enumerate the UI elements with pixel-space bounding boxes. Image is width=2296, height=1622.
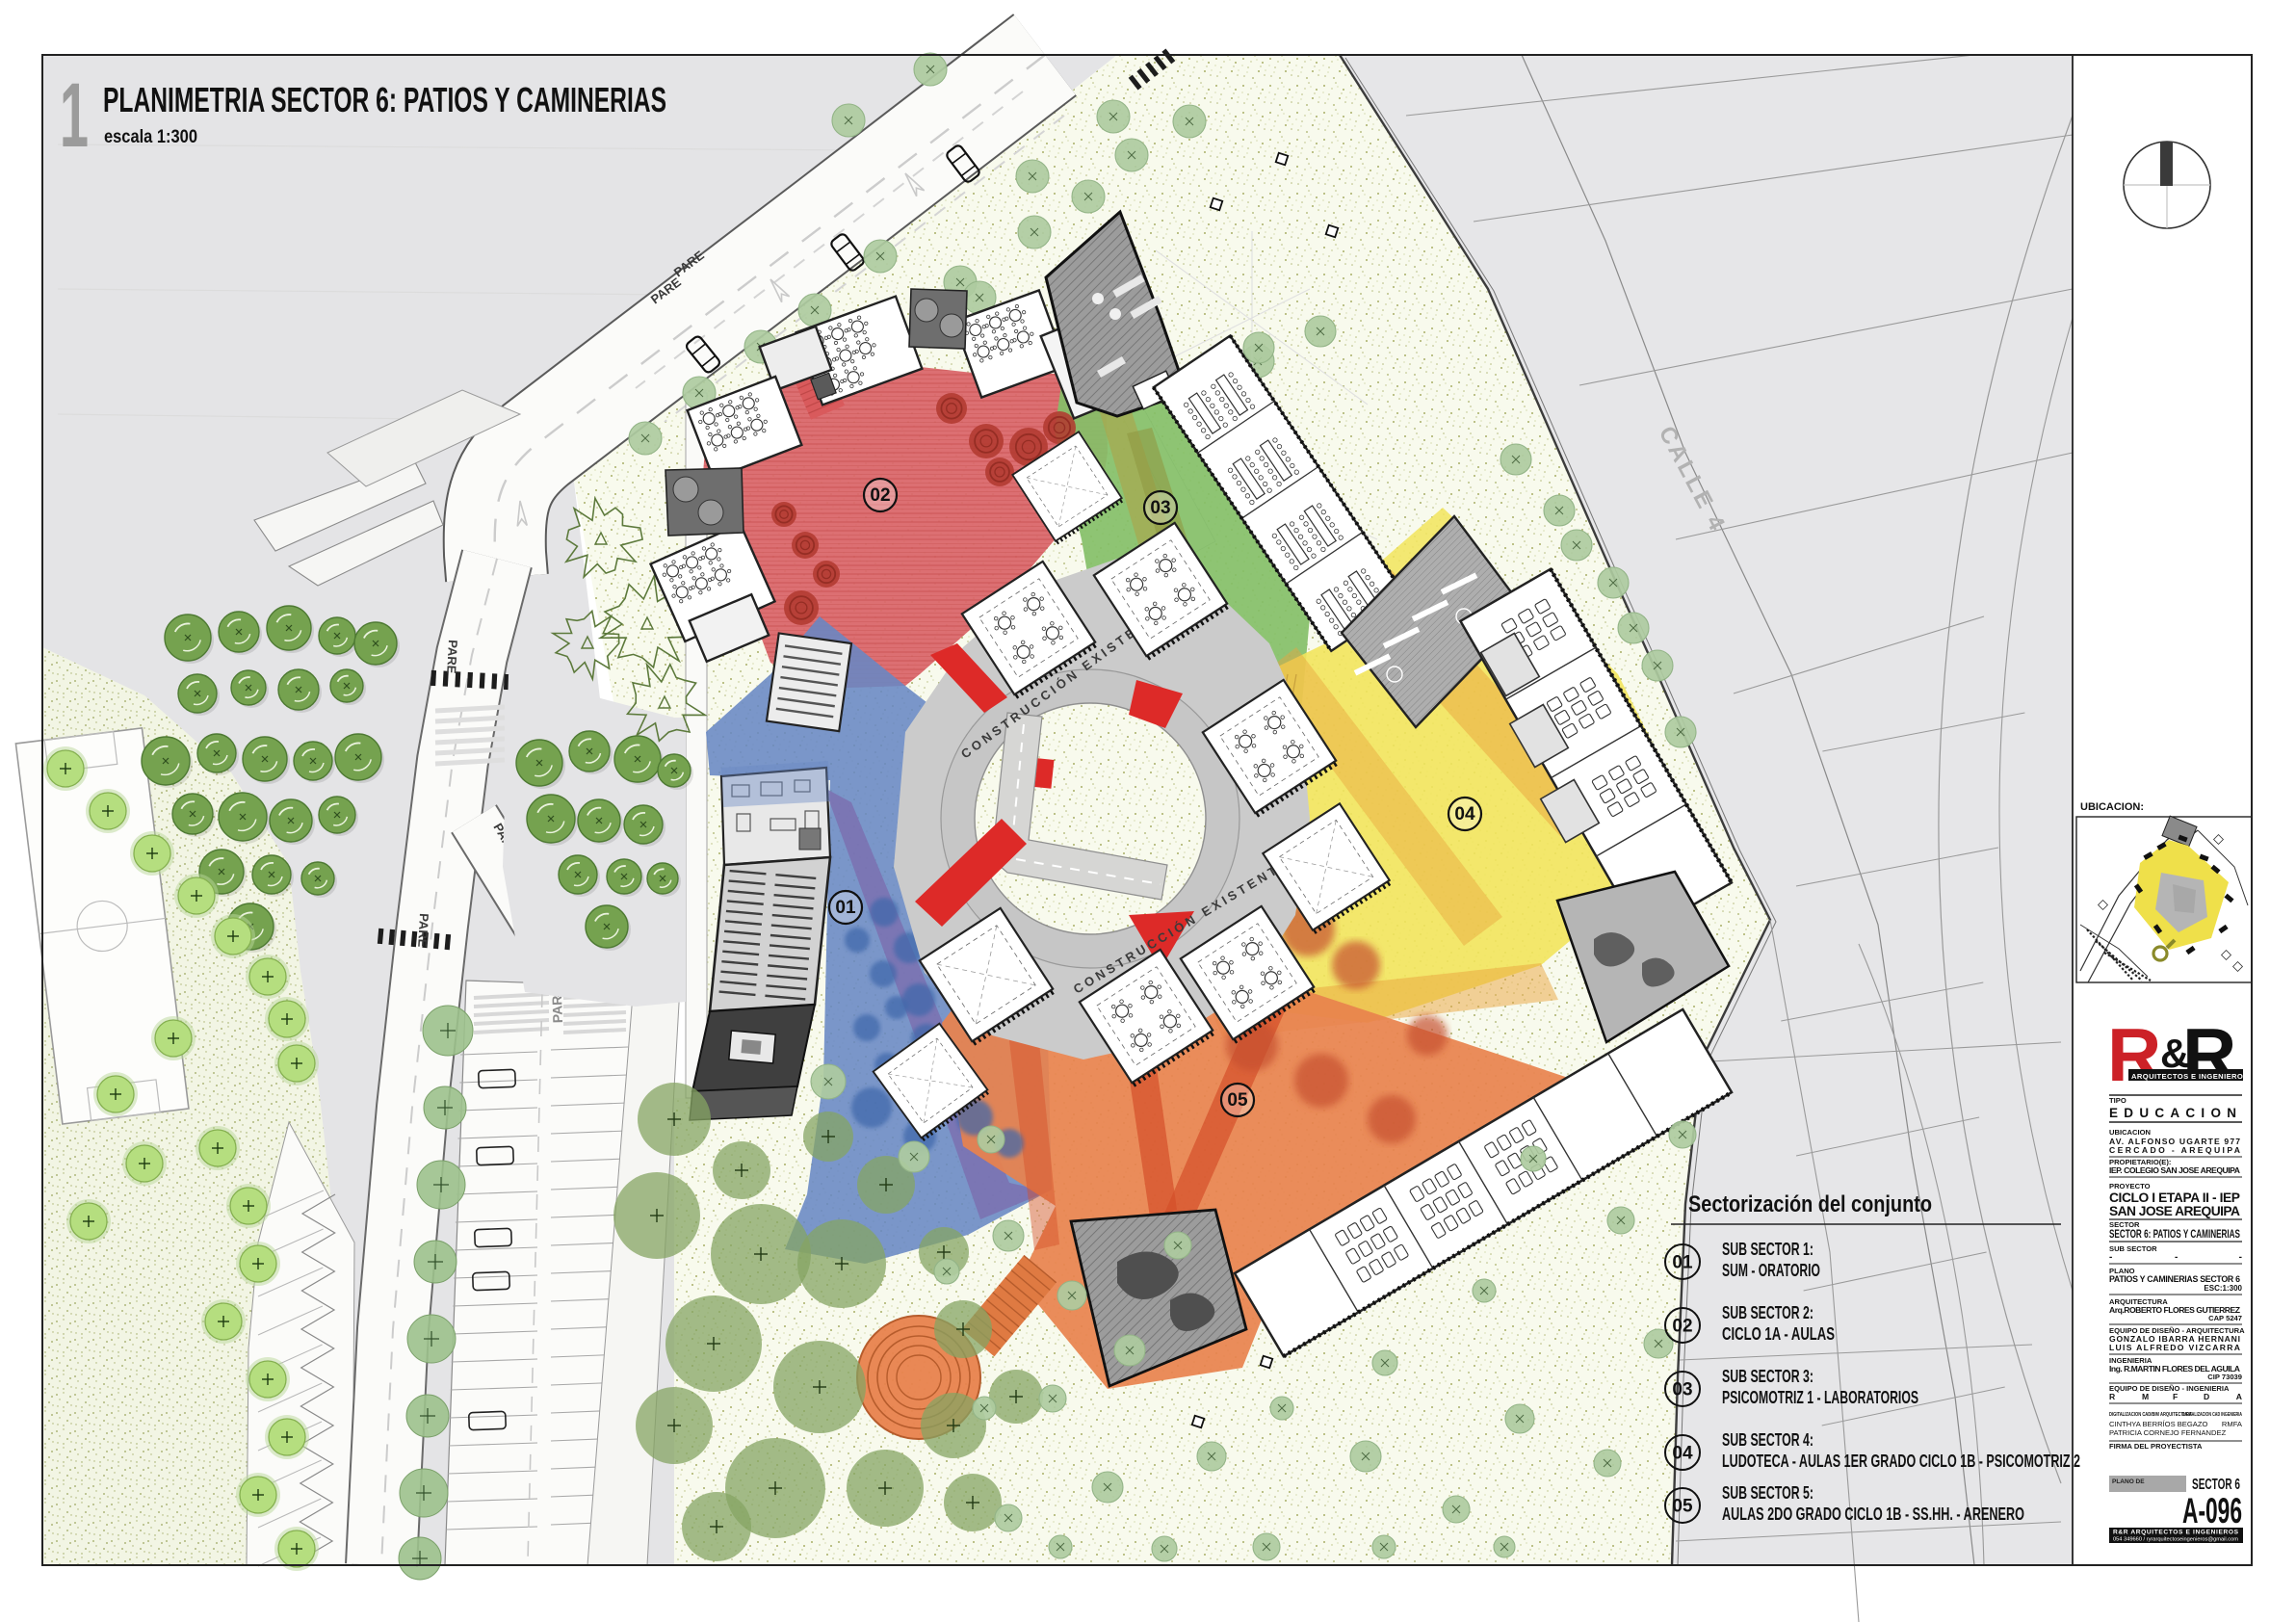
svg-text:SUB SECTOR 4:: SUB SECTOR 4:: [1722, 1430, 1813, 1450]
svg-text:PATIOS Y CAMINERIAS SECTOR 6: PATIOS Y CAMINERIAS SECTOR 6: [2109, 1274, 2240, 1284]
svg-text:SECTOR 6: PATIOS Y CAMINERIAS: SECTOR 6: PATIOS Y CAMINERIAS: [2109, 1227, 2240, 1241]
svg-text:EQUIPO DE DISEÑO - INGENIERIA: EQUIPO DE DISEÑO - INGENIERIA: [2109, 1384, 2230, 1393]
svg-text:03: 03: [1150, 498, 1170, 518]
svg-text:CICLO I ETAPA II - IEP: CICLO I ETAPA II - IEP: [2109, 1190, 2240, 1205]
svg-text:UBICACION: UBICACION: [2109, 1128, 2151, 1137]
svg-text:01: 01: [1672, 1253, 1693, 1273]
svg-text:EDUCACION: EDUCACION: [2109, 1106, 2240, 1120]
svg-text:FIRMA DEL PROYECTISTA: FIRMA DEL PROYECTISTA: [2109, 1442, 2203, 1451]
svg-text:R&R ARQUITECTOS E INGENIEROS: R&R ARQUITECTOS E INGENIEROS: [2113, 1530, 2239, 1536]
svg-text:TIPO: TIPO: [2109, 1096, 2126, 1105]
svg-text:A-096: A-096: [2182, 1491, 2242, 1530]
svg-text:PATRICIA CORNEJO FERNANDEZ: PATRICIA CORNEJO FERNANDEZ: [2109, 1428, 2227, 1437]
svg-text:03: 03: [1672, 1380, 1692, 1400]
svg-text:05: 05: [1227, 1090, 1248, 1111]
svg-text:04: 04: [1672, 1444, 1693, 1464]
svg-text:SUB SECTOR 2:: SUB SECTOR 2:: [1722, 1303, 1813, 1322]
svg-text:UBICACION:: UBICACION:: [2080, 801, 2144, 813]
svg-text:ESC:1:300: ESC:1:300: [2204, 1284, 2242, 1293]
svg-text:IEP. COLEGIO SAN JOSE AREQUIPA: IEP. COLEGIO SAN JOSE AREQUIPA: [2109, 1165, 2240, 1175]
svg-text:01: 01: [835, 898, 856, 918]
svg-text:PARE: PARE: [415, 913, 431, 948]
svg-text:M: M: [2142, 1392, 2149, 1401]
svg-text:054 349660 / ryrarquitectosein: 054 349660 / ryrarquitectoseingenieros@g…: [2113, 1537, 2238, 1543]
svg-text:LUIS ALFREDO VIZCARRA: LUIS ALFREDO VIZCARRA: [2109, 1343, 2240, 1352]
svg-text:CIP 73039: CIP 73039: [2207, 1373, 2242, 1381]
svg-text:D: D: [2204, 1392, 2209, 1401]
svg-text:SUB SECTOR: SUB SECTOR: [2109, 1244, 2157, 1253]
svg-text:PARE: PARE: [444, 640, 460, 674]
svg-text:-: -: [2239, 1252, 2242, 1263]
svg-text:SUB SECTOR 3:: SUB SECTOR 3:: [1722, 1367, 1813, 1386]
svg-text:DIGITALIZACION CAD INGENIERIA: DIGITALIZACION CAD INGENIERIA: [2182, 1412, 2242, 1418]
svg-text:-: -: [2175, 1252, 2178, 1263]
svg-text:PROYECTO: PROYECTO: [2109, 1182, 2151, 1190]
svg-text:PLANIMETRIA SECTOR 6: PATIOS Y: PLANIMETRIA SECTOR 6: PATIOS Y CAMINERIA…: [103, 80, 666, 119]
svg-text:SUB SECTOR 1:: SUB SECTOR 1:: [1722, 1240, 1813, 1259]
svg-text:ARQUITECTOS E INGENIEROS: ARQUITECTOS E INGENIEROS: [2131, 1072, 2249, 1081]
svg-text:-: -: [2109, 1252, 2112, 1263]
svg-text:02: 02: [870, 485, 890, 506]
svg-text:RMFA: RMFA: [2222, 1420, 2243, 1428]
svg-text:PSICOMOTRIZ 1 - LABORATORIOS: PSICOMOTRIZ 1 - LABORATORIOS: [1722, 1388, 1918, 1407]
svg-text:F: F: [2173, 1392, 2178, 1401]
svg-text:CAP 5247: CAP 5247: [2208, 1314, 2242, 1322]
svg-text:R: R: [2107, 1012, 2161, 1097]
svg-text:AULAS 2DO GRADO CICLO 1B - SS.: AULAS 2DO GRADO CICLO 1B - SS.HH. - AREN…: [1722, 1504, 2024, 1524]
svg-text:SUM - ORATORIO: SUM - ORATORIO: [1722, 1261, 1820, 1280]
svg-text:05: 05: [1672, 1497, 1693, 1517]
svg-text:R: R: [2182, 1012, 2236, 1097]
svg-text:SAN JOSE AREQUIPA: SAN JOSE AREQUIPA: [2109, 1204, 2240, 1218]
svg-text:LUDOTECA - AULAS 1ER GRADO CIC: LUDOTECA - AULAS 1ER GRADO CICLO 1B - PS…: [1722, 1452, 2080, 1471]
svg-text:04: 04: [1454, 804, 1475, 824]
svg-text:CICLO 1A - AULAS: CICLO 1A - AULAS: [1722, 1324, 1835, 1344]
svg-text:DIGITALIZACION CAD/BIM ARQUITE: DIGITALIZACION CAD/BIM ARQUITECTURA: [2109, 1412, 2193, 1418]
svg-text:SUB SECTOR 5:: SUB SECTOR 5:: [1722, 1483, 1813, 1503]
svg-text:PLANO DE: PLANO DE: [2112, 1478, 2145, 1485]
svg-text:02: 02: [1672, 1317, 1692, 1337]
svg-text:R: R: [2109, 1392, 2116, 1401]
svg-text:A: A: [2236, 1392, 2242, 1401]
svg-text:CINTHYA BERRÍOS BEGAZO: CINTHYA BERRÍOS BEGAZO: [2109, 1420, 2207, 1428]
svg-text:1: 1: [60, 65, 89, 167]
svg-text:escala 1:300: escala 1:300: [104, 127, 197, 147]
svg-text:Sectorización del conjunto: Sectorización del conjunto: [1688, 1191, 1932, 1217]
